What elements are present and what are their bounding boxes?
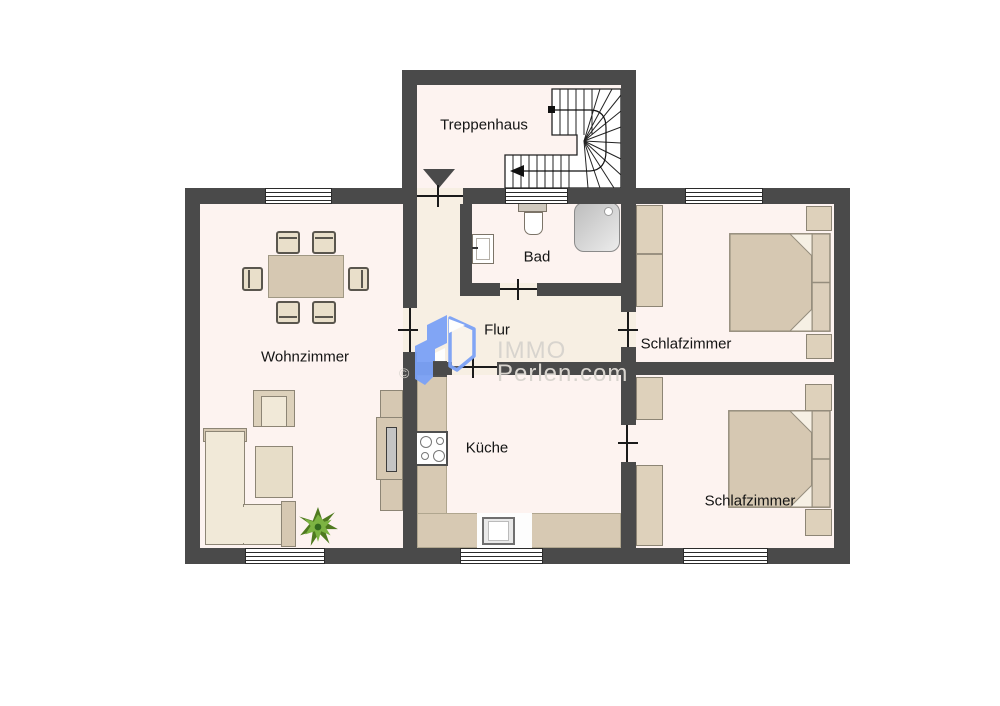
dining-table bbox=[268, 255, 344, 298]
wardrobe bbox=[636, 377, 663, 420]
door-bedroom-top-tick bbox=[618, 329, 638, 331]
sofa-seam bbox=[210, 507, 280, 543]
wardrobe-divider bbox=[637, 253, 662, 255]
room-label-bad: Bad bbox=[524, 249, 551, 266]
immoperlen-logo-icon bbox=[413, 313, 483, 389]
coffee-table bbox=[255, 446, 293, 498]
room-label-schlafzimmer-top: Schlafzimmer bbox=[641, 336, 732, 353]
dining-chair bbox=[242, 267, 263, 291]
staircase-icon bbox=[500, 85, 636, 203]
floor-plan: Treppenhaus Bad Flur Wohnzimmer Küche Sc… bbox=[0, 0, 1000, 706]
stove-burner bbox=[421, 452, 429, 460]
stair-direction-arrow-icon bbox=[423, 169, 455, 188]
wall-staircase-right bbox=[621, 70, 636, 190]
shower bbox=[574, 202, 620, 252]
window-bedroom-top bbox=[685, 188, 763, 204]
door-bedroom-bottom-tick bbox=[618, 442, 638, 444]
wall-bath-bottom bbox=[460, 283, 636, 296]
wardrobe bbox=[636, 205, 663, 307]
door-entrance-tick bbox=[437, 185, 439, 207]
door-bath-tick bbox=[517, 279, 519, 300]
tv-screen bbox=[386, 427, 397, 472]
plant-icon bbox=[297, 506, 339, 548]
bath-sink-basin bbox=[476, 238, 490, 260]
kitchen-sink-basin bbox=[488, 521, 509, 541]
room-label-schlafzimmer-bottom: Schlafzimmer bbox=[705, 493, 796, 510]
double-bed bbox=[729, 233, 831, 332]
dining-chair bbox=[348, 267, 369, 291]
stove-burner bbox=[420, 436, 432, 448]
room-label-kueche: Küche bbox=[466, 440, 509, 457]
room-label-treppenhaus: Treppenhaus bbox=[440, 117, 528, 134]
room-label-flur: Flur bbox=[484, 322, 510, 339]
door-entrance-leaf bbox=[417, 195, 463, 197]
window-livingroom-bottom bbox=[245, 548, 325, 564]
window-livingroom-top bbox=[265, 188, 332, 204]
dining-chair bbox=[312, 301, 336, 324]
sofa-armrest-right bbox=[281, 501, 296, 547]
window-bedroom-bottom bbox=[683, 548, 768, 564]
wardrobe bbox=[636, 465, 663, 546]
watermark-copyright: © bbox=[399, 366, 410, 380]
window-kitchen-bottom bbox=[460, 548, 543, 564]
armchair-seat bbox=[261, 396, 287, 427]
room-label-wohnzimmer: Wohnzimmer bbox=[261, 349, 349, 366]
shower-drain bbox=[604, 207, 613, 216]
dining-chair bbox=[312, 231, 336, 254]
nightstand bbox=[805, 509, 832, 536]
dining-chair bbox=[276, 301, 300, 324]
wall-outer-left bbox=[185, 188, 200, 564]
toilet-bowl bbox=[524, 212, 543, 235]
nightstand bbox=[806, 206, 832, 231]
stove-burner bbox=[433, 450, 445, 462]
stove-burner bbox=[436, 437, 444, 445]
watermark-brand-bottom: Perlen.com bbox=[497, 362, 628, 386]
wall-staircase-left bbox=[402, 70, 417, 190]
window-staircase-bath bbox=[505, 188, 568, 204]
nightstand bbox=[806, 334, 832, 359]
wall-outer-right bbox=[834, 188, 850, 564]
stove bbox=[415, 431, 448, 466]
wall-staircase-top bbox=[402, 70, 636, 85]
dining-chair bbox=[276, 231, 300, 254]
nightstand bbox=[805, 384, 832, 411]
